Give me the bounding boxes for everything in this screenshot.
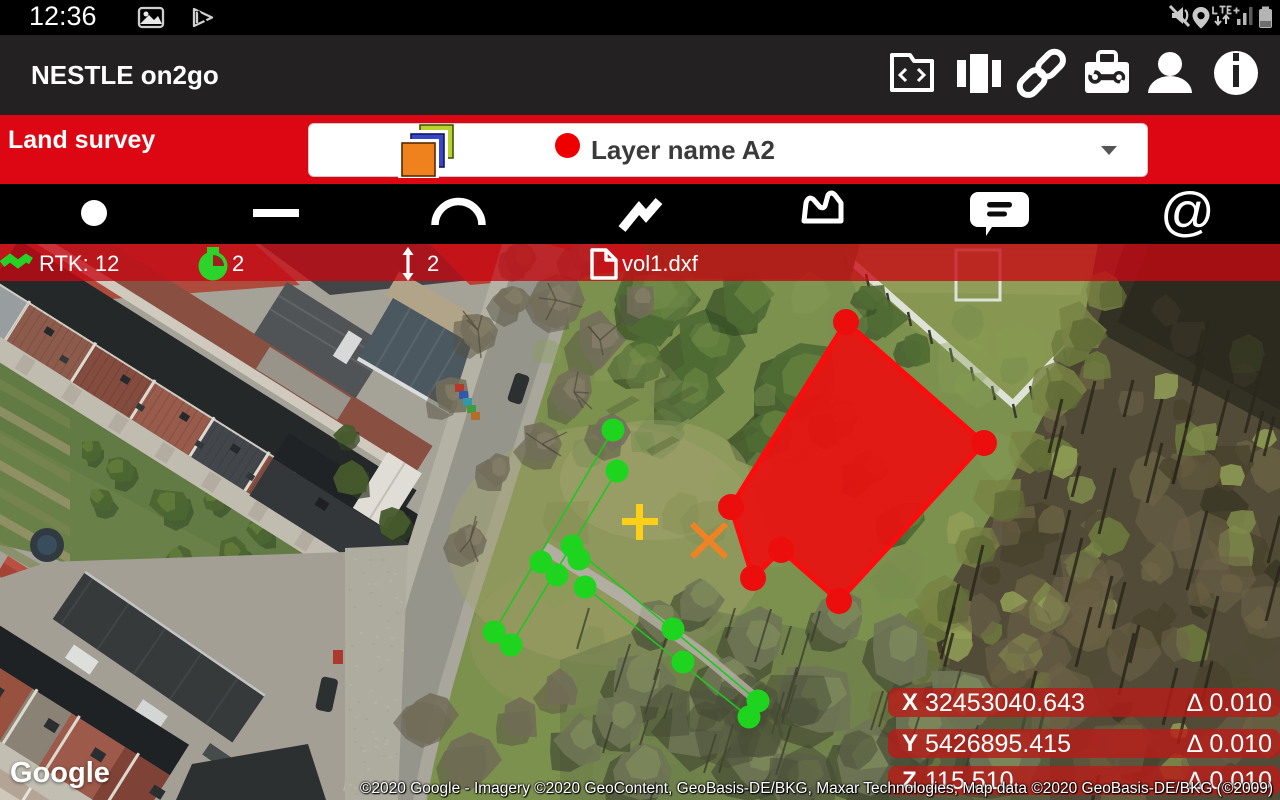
- svg-text:@: @: [1160, 184, 1215, 242]
